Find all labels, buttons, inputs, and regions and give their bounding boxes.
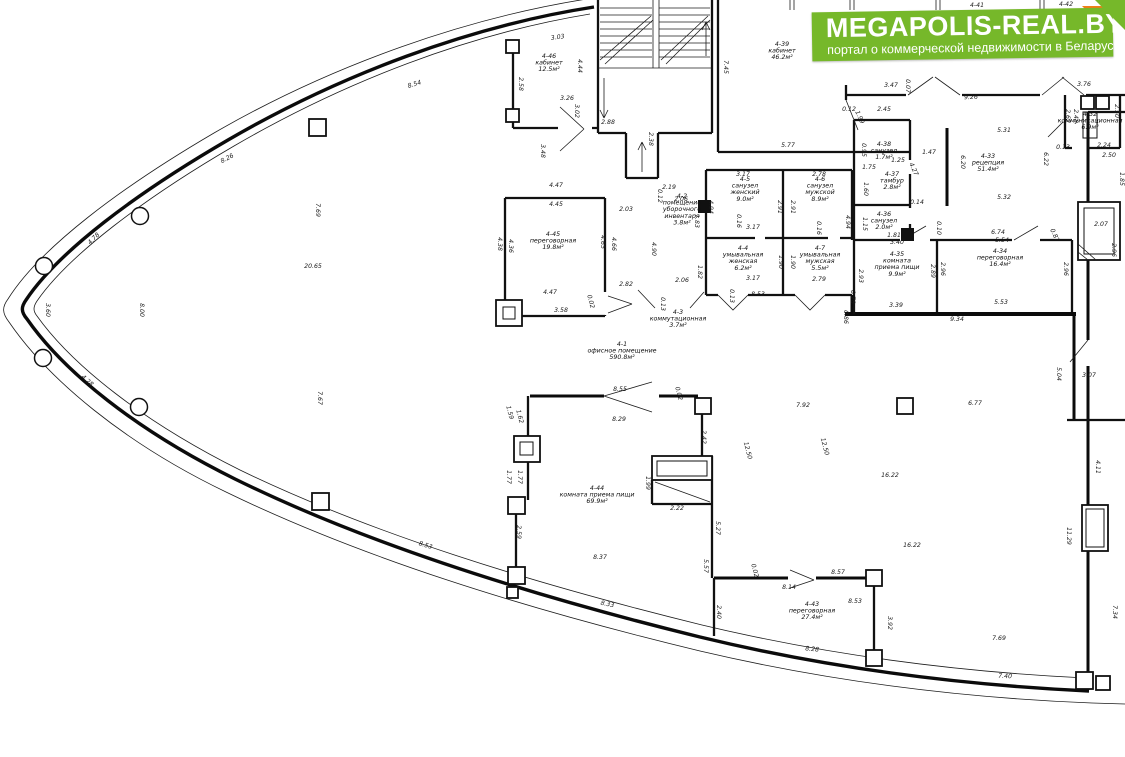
dimension-label: 2.07 bbox=[1094, 221, 1108, 228]
dimension-label: 1.90 bbox=[777, 255, 784, 269]
dimension-label: 5.53 bbox=[994, 299, 1008, 306]
room-label: 4-5санузелженский9.0м² bbox=[729, 176, 759, 203]
dimension-label: 6.77 bbox=[968, 400, 982, 407]
dimension-label: 4.94 bbox=[844, 215, 851, 229]
dimension-label: 0.78 bbox=[849, 290, 856, 304]
room-label: 4-45переговорная19.8м² bbox=[530, 231, 577, 251]
dimension-label: 2.42 bbox=[700, 430, 707, 444]
dimension-label: 6.20 bbox=[959, 155, 966, 169]
interior-walls bbox=[505, 0, 1125, 690]
dimension-label: 5.54 bbox=[995, 237, 1009, 244]
dimension-label: 8.53 bbox=[418, 540, 433, 551]
dimension-label: 3.76 bbox=[1077, 81, 1091, 88]
dimension-label: 2.50 bbox=[1113, 104, 1120, 118]
dimension-label: 1.85 bbox=[1118, 172, 1125, 186]
dimension-label: 3.92 bbox=[886, 616, 893, 630]
dimension-label: 2.22 bbox=[670, 505, 684, 512]
dimension-label: 4.90 bbox=[650, 242, 657, 256]
room-labels: 4-46кабинет12.5м²4-39кабинет46.2м²4-45пе… bbox=[530, 41, 1123, 621]
floor-plan-page: 8.548.264.783.604.288.007.6920.657.678.5… bbox=[0, 0, 1125, 757]
dimension-label: 2.40 bbox=[715, 605, 722, 619]
dimension-label: 9.26 bbox=[964, 94, 978, 101]
dimension-label: 5.32 bbox=[997, 194, 1011, 201]
room-label: 4-6санузелмужской8.9м² bbox=[805, 176, 834, 203]
corner-ribbon-icon bbox=[1095, 0, 1125, 30]
dimension-label: 1.99 bbox=[644, 476, 651, 490]
room-label: 4-35комнатаприема пищи9.9м² bbox=[875, 251, 920, 278]
dimension-label: 8.53 bbox=[848, 598, 862, 605]
dimension-label: 0.13 bbox=[1056, 144, 1070, 151]
dimension-label: 2.91 bbox=[789, 200, 796, 214]
dimension-label: 20.65 bbox=[304, 263, 322, 270]
dimension-label: 3.40 bbox=[890, 239, 904, 246]
dimension-label: 0.16 bbox=[815, 221, 822, 235]
dimension-label: 5.31 bbox=[997, 127, 1011, 134]
dimension-label: 4.94 bbox=[707, 200, 714, 214]
dimension-label: 0.02 bbox=[585, 294, 595, 309]
dimension-label: 8.26 bbox=[220, 152, 236, 165]
dimension-label: 1.47 bbox=[922, 149, 936, 156]
dimension-label: 2.06 bbox=[675, 277, 689, 284]
dimension-label: 0.07 bbox=[904, 79, 911, 93]
dimension-label: 0.14 bbox=[910, 199, 924, 206]
dimension-label: 2.79 bbox=[812, 276, 826, 283]
building-outline bbox=[4, 0, 1125, 704]
dimension-label: 3.48 bbox=[539, 144, 546, 158]
dimension-label: 2.88 bbox=[601, 119, 615, 126]
dimension-label: 12.50 bbox=[819, 437, 830, 456]
dimension-label: 1.25 bbox=[891, 157, 905, 164]
dimension-label: 0.13 bbox=[659, 297, 666, 311]
dimension-label: 0.02 bbox=[673, 386, 683, 401]
dimension-label: 0.16 bbox=[735, 214, 742, 228]
dimension-label: 1.81 bbox=[887, 232, 901, 239]
dimension-label: 3.17 bbox=[746, 275, 760, 282]
dimension-label: 0.86 bbox=[842, 310, 849, 324]
floor-plan-drawing: 8.548.264.783.604.288.007.6920.657.678.5… bbox=[0, 0, 1125, 757]
dimension-label: 0.02 bbox=[749, 563, 759, 578]
room-label: 4-46кабинет12.5м² bbox=[535, 53, 563, 73]
dimension-label: 7.40 bbox=[998, 673, 1012, 680]
dimension-label: 3.03 bbox=[550, 33, 565, 42]
room-label: 4-1офисное помещение590.8м² bbox=[587, 341, 656, 361]
dimension-label: 2.50 bbox=[1102, 152, 1116, 159]
dimension-label: 3.17 bbox=[746, 224, 760, 231]
dimension-label: 2.91 bbox=[776, 200, 783, 214]
room-label: 4-7умывальнаямужская5.5м² bbox=[799, 245, 841, 272]
dimension-label: 8.37 bbox=[593, 554, 607, 561]
dimension-label: 1.77 bbox=[516, 470, 523, 484]
dimension-label: 7.69 bbox=[992, 635, 1006, 642]
dimension-label: 5.04 bbox=[1055, 367, 1062, 381]
dimension-label: 8.28 bbox=[805, 645, 819, 653]
megapolis-watermark-banner: MEGAPOLIS-REAL.BY портал о коммерческой … bbox=[812, 8, 1114, 62]
room-label: 4-37тамбур2.8м² bbox=[880, 171, 904, 191]
room-label: 4-43переговорная27.4м² bbox=[789, 601, 836, 621]
room-label: 4-34переговорная16.4м² bbox=[977, 248, 1024, 268]
dimension-label: 2.24 bbox=[1097, 142, 1111, 149]
room-label: 4-3коммутационная3.7м² bbox=[650, 309, 707, 329]
dimension-label: 2.96 bbox=[1062, 262, 1069, 276]
dimension-label: 3.47 bbox=[884, 82, 898, 89]
dimension-labels: 8.548.264.783.604.288.007.6920.657.678.5… bbox=[44, 1, 1125, 680]
dimension-label: 8.57 bbox=[831, 569, 845, 576]
dimension-label: 4.45 bbox=[549, 201, 563, 208]
dimension-label: 1.77 bbox=[505, 470, 512, 484]
room-label: 4-36санузел2.0м² bbox=[871, 211, 897, 231]
dimension-label: 1.15 bbox=[861, 217, 868, 231]
dimension-label: 7.45 bbox=[722, 60, 729, 74]
dimension-label: 2.19 bbox=[662, 184, 676, 191]
dimension-label: 1.62 bbox=[514, 409, 524, 424]
dimension-label: 1.59 bbox=[504, 405, 514, 420]
dimension-label: 3.07 bbox=[1082, 372, 1096, 379]
room-label: 4-39кабинет46.2м² bbox=[768, 41, 796, 61]
dimension-label: 3.58 bbox=[554, 307, 568, 314]
dimension-label: 4.65 bbox=[599, 235, 606, 249]
dimension-label: 2.03 bbox=[619, 206, 633, 213]
dimension-label: 2.89 bbox=[929, 264, 936, 278]
room-number-partial: 4-42 bbox=[1059, 1, 1073, 8]
dimension-label: 8.55 bbox=[613, 386, 627, 393]
dimension-label: 9.34 bbox=[950, 316, 964, 323]
dimension-label: 3.02 bbox=[573, 104, 580, 118]
dimension-label: 4.36 bbox=[507, 239, 514, 253]
dimension-label: 0.10 bbox=[935, 221, 942, 235]
dimension-label: 4.66 bbox=[610, 237, 617, 251]
dimension-label: 2.82 bbox=[619, 281, 633, 288]
dimension-label: 2.96 bbox=[1110, 243, 1117, 257]
dimension-label: 2.59 bbox=[515, 525, 522, 539]
room-label: 4-33рецепция51.4м² bbox=[971, 153, 1005, 173]
dimension-label: 4.11 bbox=[1094, 460, 1101, 474]
dimension-label: 4.47 bbox=[549, 182, 563, 189]
dimension-label: 1.75 bbox=[862, 164, 876, 171]
dimension-label: 2.45 bbox=[877, 106, 891, 113]
dimension-label: 8.00 bbox=[138, 303, 145, 317]
room-number-partial: 4-41 bbox=[970, 2, 984, 9]
dimension-label: 16.22 bbox=[881, 472, 899, 479]
dimension-label: 8.54 bbox=[407, 79, 422, 90]
dimension-label: 8.33 bbox=[600, 600, 615, 610]
dimension-label: 4.44 bbox=[576, 59, 583, 73]
dimension-label: 7.92 bbox=[796, 402, 810, 409]
dimension-label: 6.74 bbox=[991, 229, 1005, 236]
dimension-label: 4.38 bbox=[496, 237, 503, 251]
dimension-label: 5.77 bbox=[781, 142, 795, 149]
dimension-label: 8.14 bbox=[782, 584, 796, 591]
dimension-label: 2.96 bbox=[939, 262, 946, 276]
dimension-label: 1.60 bbox=[862, 182, 869, 196]
dimension-label: 16.22 bbox=[903, 542, 921, 549]
dimension-label: 2.38 bbox=[647, 132, 654, 146]
dimension-label: 8.29 bbox=[612, 416, 626, 423]
dimension-label: 2.58 bbox=[517, 77, 524, 91]
room-label: 4-44комната приема пищи69.9м² bbox=[560, 485, 635, 505]
dimension-label: 5.27 bbox=[714, 521, 721, 535]
dimension-label: 0.95 bbox=[860, 143, 867, 157]
dimension-label: 5.57 bbox=[702, 559, 709, 573]
staircase bbox=[598, 0, 712, 172]
watermark-title: MEGAPOLIS-REAL.BY bbox=[812, 8, 1113, 44]
dimension-label: 6.22 bbox=[1042, 152, 1049, 166]
dimension-label: 2.93 bbox=[857, 269, 864, 283]
dimension-label: 8.53 bbox=[751, 291, 765, 298]
dimension-label: 3.39 bbox=[889, 302, 903, 309]
dimension-label: 4.47 bbox=[543, 289, 557, 296]
dimension-label: 7.67 bbox=[316, 391, 323, 405]
dimension-label: 7.69 bbox=[314, 203, 321, 217]
dimension-label: 11.29 bbox=[1065, 527, 1072, 545]
dimension-label: 0.13 bbox=[728, 289, 735, 303]
door-swing-marks bbox=[560, 77, 1088, 588]
dimension-label: 1.82 bbox=[696, 265, 703, 279]
dimension-label: 3.60 bbox=[44, 303, 51, 317]
dimension-label: 1.90 bbox=[789, 255, 796, 269]
dimension-label: 12.50 bbox=[742, 441, 753, 460]
room-label: 4-4умывальнаяженская6.2м² bbox=[722, 245, 764, 272]
dimension-label: 7.34 bbox=[1111, 605, 1118, 619]
dimension-label: 3.26 bbox=[560, 95, 574, 102]
